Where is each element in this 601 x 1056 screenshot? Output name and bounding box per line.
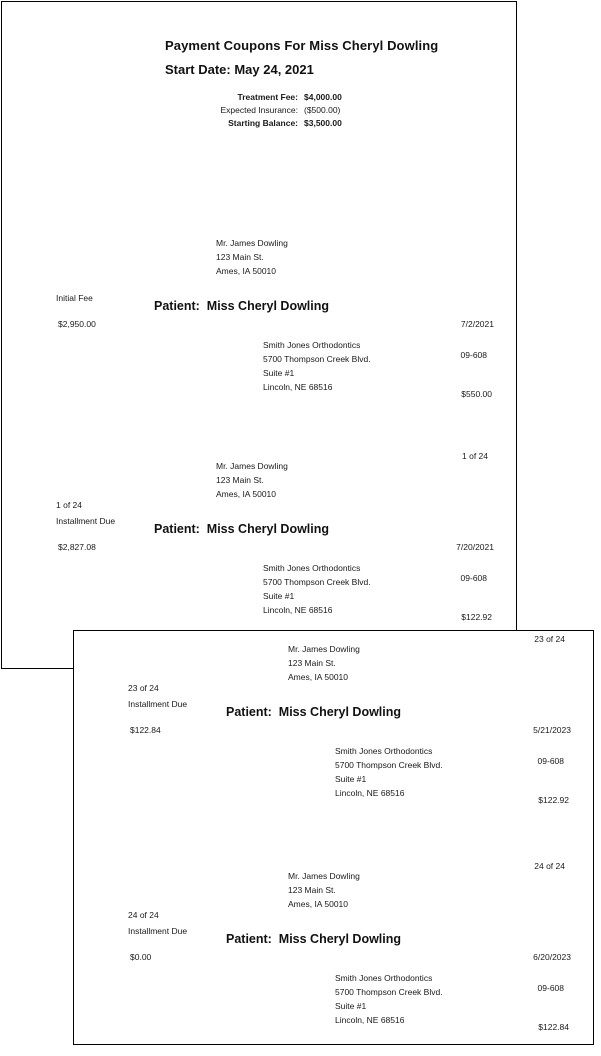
payee-address: Smith Jones Orthodontics 5700 Thompson C… xyxy=(263,561,371,617)
address-line: 123 Main St. xyxy=(216,250,288,264)
treatment-fee-row: Treatment Fee: $4,000.00 xyxy=(2,91,516,104)
address-line: 5700 Thompson Creek Blvd. xyxy=(263,352,371,366)
payment-amount: $122.92 xyxy=(461,612,492,622)
balance-amount: $122.84 xyxy=(130,725,161,735)
coupon-sequence: 24 of 24 xyxy=(128,910,159,920)
coupon-count: 23 of 24 xyxy=(534,634,565,644)
expected-insurance-value: ($500.00) xyxy=(304,104,340,117)
payee-address: Smith Jones Orthodontics 5700 Thompson C… xyxy=(335,971,443,1027)
address-line: 5700 Thompson Creek Blvd. xyxy=(263,575,371,589)
payment-amount: $550.00 xyxy=(461,389,492,399)
address-line: 123 Main St. xyxy=(216,473,288,487)
payment-amount: $122.84 xyxy=(538,1022,569,1032)
address-line: 123 Main St. xyxy=(288,883,360,897)
treatment-fee-label: Treatment Fee: xyxy=(2,91,298,104)
address-line: Mr. James Dowling xyxy=(288,642,360,656)
address-line: 123 Main St. xyxy=(288,656,360,670)
address-line: Suite #1 xyxy=(263,366,371,380)
coupon-initial-fee: Mr. James Dowling 123 Main St. Ames, IA … xyxy=(2,228,516,408)
address-line: Suite #1 xyxy=(335,772,443,786)
expected-insurance-row: Expected Insurance: ($500.00) xyxy=(2,104,516,117)
address-line: Lincoln, NE 68516 xyxy=(335,1013,443,1027)
print-preview-canvas: { "document": { "title": "Payment Coupon… xyxy=(0,0,601,1056)
starting-balance-label: Starting Balance: xyxy=(2,117,298,130)
address-line: Smith Jones Orthodontics xyxy=(263,561,371,575)
address-line: Smith Jones Orthodontics xyxy=(335,971,443,985)
address-line: Suite #1 xyxy=(263,589,371,603)
address-line: Mr. James Dowling xyxy=(216,236,288,250)
address-line: Suite #1 xyxy=(335,999,443,1013)
fee-type-label: Initial Fee xyxy=(56,293,93,303)
payment-amount: $122.92 xyxy=(538,795,569,805)
due-date: 6/20/2023 xyxy=(533,952,571,962)
address-line: Lincoln, NE 68516 xyxy=(263,380,371,394)
due-date: 5/21/2023 xyxy=(533,725,571,735)
recipient-address: Mr. James Dowling 123 Main St. Ames, IA … xyxy=(288,869,360,911)
address-line: 5700 Thompson Creek Blvd. xyxy=(335,758,443,772)
coupon-installment-1: 1 of 24 Mr. James Dowling 123 Main St. A… xyxy=(2,451,516,631)
coupon-installment-23: 23 of 24 Mr. James Dowling 123 Main St. … xyxy=(74,634,593,814)
coupon-installment-24: 24 of 24 Mr. James Dowling 123 Main St. … xyxy=(74,861,593,1041)
due-date: 7/20/2021 xyxy=(456,542,494,552)
coupon-count: 1 of 24 xyxy=(462,451,488,461)
patient-heading: Patient: Miss Cheryl Dowling xyxy=(226,932,401,946)
address-line: Ames, IA 50010 xyxy=(216,264,288,278)
coupon-sequence: 23 of 24 xyxy=(128,683,159,693)
coupon-count: 24 of 24 xyxy=(534,861,565,871)
balance-amount: $2,827.08 xyxy=(58,542,96,552)
account-number: 09-608 xyxy=(538,756,564,766)
address-line: Ames, IA 50010 xyxy=(288,670,360,684)
recipient-address: Mr. James Dowling 123 Main St. Ames, IA … xyxy=(216,236,288,278)
starting-balance-value: $3,500.00 xyxy=(304,117,342,130)
fee-type-label: Installment Due xyxy=(128,699,187,709)
address-line: Lincoln, NE 68516 xyxy=(263,603,371,617)
fee-type-label: Installment Due xyxy=(56,516,115,526)
address-line: Mr. James Dowling xyxy=(288,869,360,883)
account-number: 09-608 xyxy=(461,573,487,583)
address-line: Smith Jones Orthodontics xyxy=(335,744,443,758)
starting-balance-row: Starting Balance: $3,500.00 xyxy=(2,117,516,130)
payee-address: Smith Jones Orthodontics 5700 Thompson C… xyxy=(263,338,371,394)
balance-amount: $0.00 xyxy=(130,952,151,962)
payee-address: Smith Jones Orthodontics 5700 Thompson C… xyxy=(335,744,443,800)
address-line: Smith Jones Orthodontics xyxy=(263,338,371,352)
fee-type-label: Installment Due xyxy=(128,926,187,936)
treatment-fee-value: $4,000.00 xyxy=(304,91,342,104)
due-date: 7/2/2021 xyxy=(461,319,494,329)
account-number: 09-608 xyxy=(461,350,487,360)
account-number: 09-608 xyxy=(538,983,564,993)
expected-insurance-label: Expected Insurance: xyxy=(2,104,298,117)
balance-amount: $2,950.00 xyxy=(58,319,96,329)
patient-heading: Patient: Miss Cheryl Dowling xyxy=(154,522,329,536)
report-page-2: 23 of 24 Mr. James Dowling 123 Main St. … xyxy=(73,630,594,1045)
report-title: Payment Coupons For Miss Cheryl Dowling xyxy=(165,38,438,53)
coupon-sequence: 1 of 24 xyxy=(56,500,82,510)
patient-heading: Patient: Miss Cheryl Dowling xyxy=(226,705,401,719)
report-page-1: Payment Coupons For Miss Cheryl Dowling … xyxy=(1,1,517,669)
recipient-address: Mr. James Dowling 123 Main St. Ames, IA … xyxy=(216,459,288,501)
address-line: 5700 Thompson Creek Blvd. xyxy=(335,985,443,999)
address-line: Ames, IA 50010 xyxy=(288,897,360,911)
recipient-address: Mr. James Dowling 123 Main St. Ames, IA … xyxy=(288,642,360,684)
address-line: Mr. James Dowling xyxy=(216,459,288,473)
patient-heading: Patient: Miss Cheryl Dowling xyxy=(154,299,329,313)
report-start-date: Start Date: May 24, 2021 xyxy=(165,62,314,77)
fee-summary: Treatment Fee: $4,000.00 Expected Insura… xyxy=(2,91,516,130)
address-line: Lincoln, NE 68516 xyxy=(335,786,443,800)
address-line: Ames, IA 50010 xyxy=(216,487,288,501)
